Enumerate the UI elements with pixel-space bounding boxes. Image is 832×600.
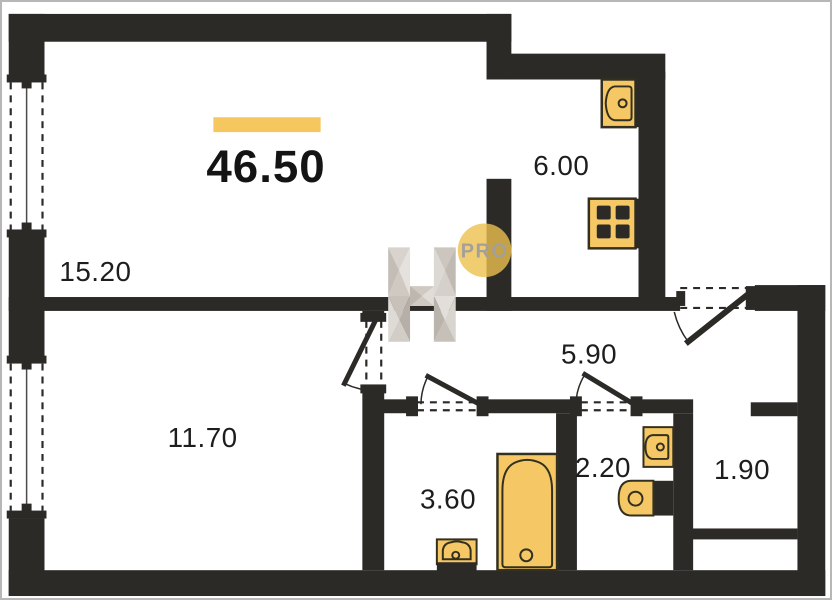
- floor-plan-canvas: PRO 46.50 15.20 11.70 6.00 5.90 3.60 2.2…: [2, 2, 830, 598]
- wall-top: [9, 14, 512, 42]
- total-area-label: 46.50: [206, 141, 325, 192]
- bedroom-door: [344, 313, 386, 393]
- wall-kitchen-left-stub: [487, 14, 512, 80]
- toilet-tank: [653, 481, 673, 516]
- wall-left-pillar-mid: [9, 235, 45, 362]
- room-label-hallway: 5.90: [561, 339, 617, 370]
- window-frame-block: [22, 223, 32, 231]
- entrance-door: [674, 283, 756, 342]
- room-label-bedroom: 11.70: [168, 422, 238, 453]
- watermark-h: [388, 247, 456, 341]
- toilet-icon: [619, 481, 674, 516]
- room-label-kitchen: 6.00: [533, 150, 589, 181]
- floor-plan: PRO 46.50 15.20 11.70 6.00 5.90 3.60 2.2…: [0, 0, 832, 600]
- stove-burner: [616, 206, 630, 220]
- left-lower-window: [7, 356, 47, 519]
- toilet-bowl: [619, 481, 654, 516]
- stove-burner: [597, 225, 611, 239]
- room-label-living: 15.20: [59, 256, 131, 287]
- accent-bar: [213, 117, 320, 132]
- sink-counter-edge: [636, 79, 643, 127]
- bathroom-door: [406, 376, 488, 416]
- kitchen-sink-icon: [602, 79, 643, 127]
- door-post: [406, 396, 418, 416]
- door-swing-arc: [674, 312, 688, 342]
- wall-bottom: [9, 570, 826, 596]
- wall-main-divider: [9, 297, 680, 311]
- wall-bath-wc-divider: [556, 413, 577, 570]
- stove-edge: [636, 199, 643, 249]
- wc-washbasin-icon: [643, 427, 673, 467]
- stove-burner: [597, 206, 611, 220]
- wall-kitchen-right: [639, 72, 666, 310]
- door-post: [676, 291, 685, 306]
- window-frame-block: [22, 504, 32, 512]
- wall-niche: [688, 528, 797, 539]
- wall-closet-stub: [751, 402, 798, 416]
- pro-badge: PRO: [458, 224, 512, 278]
- room-label-bathroom: 3.60: [420, 484, 476, 515]
- washbasin-icon: [437, 539, 477, 571]
- window-cap: [7, 229, 47, 237]
- left-upper-window: [7, 75, 47, 238]
- stove-icon: [589, 199, 643, 249]
- bathtub-icon: [497, 454, 557, 570]
- washbasin-base: [437, 562, 477, 571]
- wall-wc-right: [673, 413, 693, 570]
- pro-badge-label: PRO: [461, 240, 509, 262]
- wc-door: [570, 375, 643, 417]
- window-frame-block: [22, 362, 32, 370]
- window-frame-block: [22, 80, 32, 88]
- wall-left-pillar-top: [9, 14, 45, 77]
- window-cap: [7, 511, 47, 519]
- room-label-closet: 1.90: [714, 454, 770, 485]
- wall-right-outer: [797, 285, 825, 596]
- room-label-wc: 2.20: [575, 452, 631, 483]
- stove-burner: [616, 225, 630, 239]
